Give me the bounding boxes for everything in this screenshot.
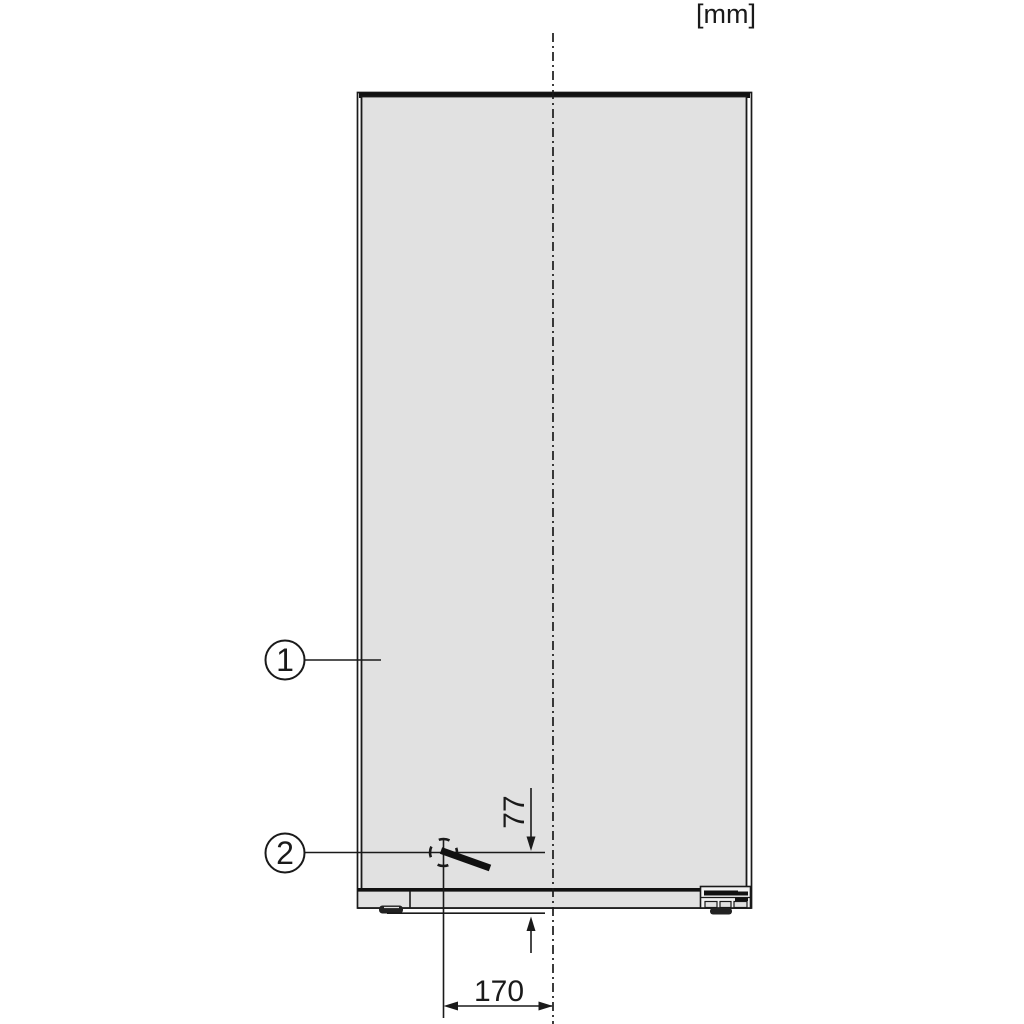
hinge-latch-icon bbox=[735, 898, 748, 902]
hinge-tab-2 bbox=[720, 902, 731, 908]
unit-label: [mm] bbox=[696, 0, 756, 29]
plinth-area bbox=[359, 891, 751, 908]
diagram-canvas: [mm] bbox=[0, 0, 1024, 1024]
dimension-170-label: 170 bbox=[474, 975, 524, 1008]
front-panel bbox=[362, 97, 747, 891]
installation-diagram: [mm] bbox=[0, 0, 1024, 1024]
hinge-tab-3 bbox=[734, 902, 747, 908]
callout-2-label: 2 bbox=[276, 835, 294, 871]
callout-2: 2 bbox=[266, 834, 305, 873]
hinge-bar-icon bbox=[704, 891, 738, 896]
hinge-tab-1 bbox=[705, 902, 717, 908]
hinge-bar-end bbox=[738, 892, 748, 896]
left-foot-icon bbox=[379, 906, 403, 914]
right-foot-icon bbox=[710, 908, 732, 915]
dimension-77-label: 77 bbox=[498, 795, 531, 828]
callout-1-label: 1 bbox=[276, 642, 294, 678]
appliance-body bbox=[358, 93, 752, 915]
